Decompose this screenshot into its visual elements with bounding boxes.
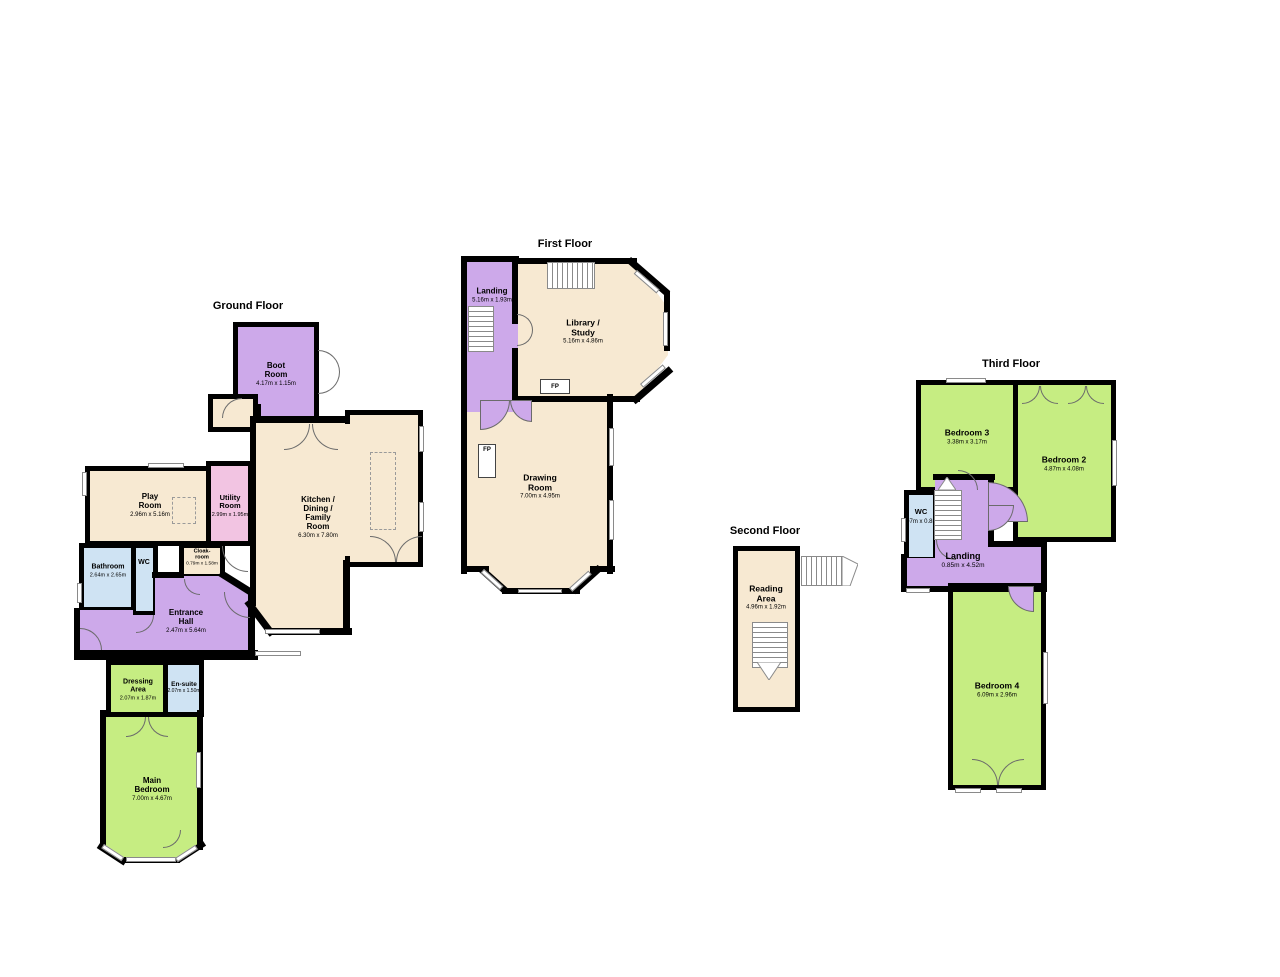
- window: [901, 518, 906, 542]
- floor-title-first-floor: First Floor: [538, 238, 592, 250]
- window: [148, 463, 184, 468]
- room-dims-boot-room: 4.17m x 1.15m: [256, 381, 296, 388]
- room-dims-bedroom-2: 4.87m x 4.08m: [1042, 466, 1086, 473]
- room-name-play-room: Play Room: [130, 493, 170, 511]
- window: [265, 629, 320, 634]
- room-dims-drawing-room: 7.00m x 4.95m: [520, 494, 560, 501]
- room-name-bathroom: Bathroom: [90, 564, 126, 572]
- wall: [343, 560, 350, 635]
- room-name-drawing-room: Drawing Room: [520, 474, 560, 493]
- room-label-en-suite: En-suite2.07m x 1.50m: [167, 681, 200, 695]
- window: [1112, 440, 1117, 486]
- room-dims-bathroom: 2.64m x 2.65m: [90, 572, 126, 578]
- room-name-wc-third: WC: [915, 508, 928, 516]
- room-dims-library-study: 5.16m x 4.86m: [563, 339, 603, 346]
- window: [196, 752, 201, 788]
- fireplace-label: FP: [483, 447, 491, 453]
- room-label-cloakroom: Cloak- room0.79m x 1.58m: [186, 549, 218, 568]
- room-dims-main-bedroom: 7.00m x 4.67m: [132, 796, 172, 803]
- room-dims-entrance-hall: 2.47m x 5.64m: [166, 628, 206, 635]
- room-name-landing-third: Landing: [942, 551, 985, 561]
- wall: [250, 416, 256, 606]
- wall: [512, 348, 518, 402]
- wall-patch: [345, 424, 353, 556]
- room-name-dressing-area: Dressing Area: [120, 679, 156, 695]
- room-name-entrance-hall: Entrance Hall: [166, 609, 206, 627]
- stairs: [547, 262, 595, 289]
- room-name-bedroom-4: Bedroom 4: [975, 681, 1019, 691]
- wall: [74, 650, 258, 660]
- window: [419, 502, 424, 532]
- room-dims-landing-first: 5.16m x 1.93m: [472, 298, 512, 305]
- room-label-landing-third: Landing0.85m x 4.52m: [942, 551, 985, 569]
- room-wc-third: [904, 490, 938, 562]
- wall: [461, 256, 467, 416]
- room-label-wc-ground: WC: [138, 559, 150, 567]
- room-name-main-bedroom: Main Bedroom: [132, 777, 172, 795]
- room-name-bedroom-3: Bedroom 3: [945, 428, 989, 438]
- door-arc: [988, 505, 1014, 531]
- wall: [1041, 541, 1047, 592]
- wall: [988, 541, 1046, 547]
- window: [663, 312, 668, 346]
- stairs: [801, 556, 843, 586]
- wall: [590, 566, 615, 572]
- fireplace: FP: [540, 379, 570, 394]
- room-label-bedroom-3: Bedroom 33.38m x 3.17m: [945, 428, 989, 445]
- stairs: [934, 490, 962, 540]
- floor-title-second-floor: Second Floor: [730, 525, 800, 537]
- window: [518, 589, 562, 593]
- floorplan-canvas: Ground FloorBoot Room4.17m x 1.15mPlay R…: [0, 0, 1280, 977]
- room-wc-ground: [131, 543, 158, 616]
- room-label-landing-first: Landing5.16m x 1.93m: [472, 288, 512, 305]
- room-name-boot-room: Boot Room: [256, 362, 296, 380]
- room-dims-en-suite: 2.07m x 1.50m: [167, 689, 200, 695]
- wall: [250, 416, 350, 423]
- wall: [513, 396, 640, 402]
- room-label-utility-room: Utility Room2.99m x 1.95m: [212, 494, 248, 518]
- room-name-kitchen-dining-family-room: Kitchen / Dining / Family Room: [298, 496, 338, 532]
- window: [419, 426, 424, 452]
- room-name-en-suite: En-suite: [167, 681, 200, 688]
- room-label-bathroom: Bathroom2.64m x 2.65m: [90, 564, 126, 579]
- wall: [461, 394, 467, 574]
- room-dims-kitchen-dining-family-room: 6.30m x 7.80m: [298, 533, 338, 540]
- window: [955, 788, 981, 793]
- dashed-outline: [172, 497, 196, 524]
- window: [1043, 652, 1048, 704]
- room-label-bedroom-4: Bedroom 46.09m x 2.96m: [975, 681, 1019, 698]
- wall-patch: [258, 394, 314, 404]
- room-label-dressing-area: Dressing Area2.07m x 1.87m: [120, 679, 156, 702]
- wall: [100, 710, 106, 850]
- stair-arrow: [757, 662, 781, 680]
- room-label-entrance-hall: Entrance Hall2.47m x 5.64m: [166, 609, 206, 635]
- fireplace-label: FP: [551, 384, 559, 390]
- room-label-library-study: Library / Study5.16m x 4.86m: [563, 319, 603, 346]
- room-label-bedroom-2: Bedroom 24.87m x 4.08m: [1042, 455, 1086, 472]
- floor-title-ground-floor: Ground Floor: [213, 300, 283, 312]
- room-label-drawing-room: Drawing Room7.00m x 4.95m: [520, 474, 560, 501]
- wall: [607, 394, 613, 574]
- room-name-bedroom-2: Bedroom 2: [1042, 455, 1086, 465]
- room-dims-reading-area: 4.96m x 1.92m: [746, 605, 786, 612]
- room-label-boot-room: Boot Room4.17m x 1.15m: [256, 362, 296, 388]
- window: [996, 788, 1022, 793]
- dashed-outline: [370, 452, 396, 530]
- room-label-wc-third: WC: [915, 508, 928, 516]
- stair-arrow: [938, 477, 956, 490]
- window: [906, 588, 930, 593]
- room-name-utility-room: Utility Room: [212, 494, 248, 511]
- stair-arrow: [842, 556, 858, 586]
- room-name-landing-first: Landing: [472, 288, 512, 297]
- floor-title-third-floor: Third Floor: [982, 358, 1040, 370]
- window: [82, 472, 87, 496]
- room-label-reading-area: Reading Area4.96m x 1.92m: [746, 585, 786, 612]
- room-dims-bedroom-4: 6.09m x 2.96m: [975, 692, 1019, 699]
- wall: [461, 256, 519, 262]
- room-label-play-room: Play Room2.96m x 5.16m: [130, 493, 170, 519]
- room-name-wc-ground: WC: [138, 559, 150, 567]
- room-name-library-study: Library / Study: [563, 319, 603, 338]
- room-name-cloakroom: Cloak- room: [186, 549, 218, 561]
- room-dims-cloakroom: 0.79m x 1.58m: [186, 562, 218, 567]
- window: [946, 378, 986, 383]
- room-dims-landing-third: 0.85m x 4.52m: [942, 562, 985, 569]
- window: [126, 857, 176, 862]
- stairs: [468, 306, 494, 352]
- room-label-kitchen-dining-family-room: Kitchen / Dining / Family Room6.30m x 7.…: [298, 496, 338, 540]
- fireplace: FP: [478, 444, 496, 478]
- room-dims-play-room: 2.96m x 5.16m: [130, 512, 170, 519]
- room-dims-bedroom-3: 3.38m x 3.17m: [945, 439, 989, 446]
- window: [255, 651, 301, 656]
- window: [609, 428, 614, 466]
- room-dims-dressing-area: 2.07m x 1.87m: [120, 695, 156, 701]
- wall: [152, 572, 184, 578]
- window: [609, 500, 614, 540]
- room-label-main-bedroom: Main Bedroom7.00m x 4.67m: [132, 777, 172, 803]
- room-dims-utility-room: 2.99m x 1.95m: [212, 512, 248, 518]
- window: [77, 583, 82, 603]
- room-name-reading-area: Reading Area: [746, 585, 786, 604]
